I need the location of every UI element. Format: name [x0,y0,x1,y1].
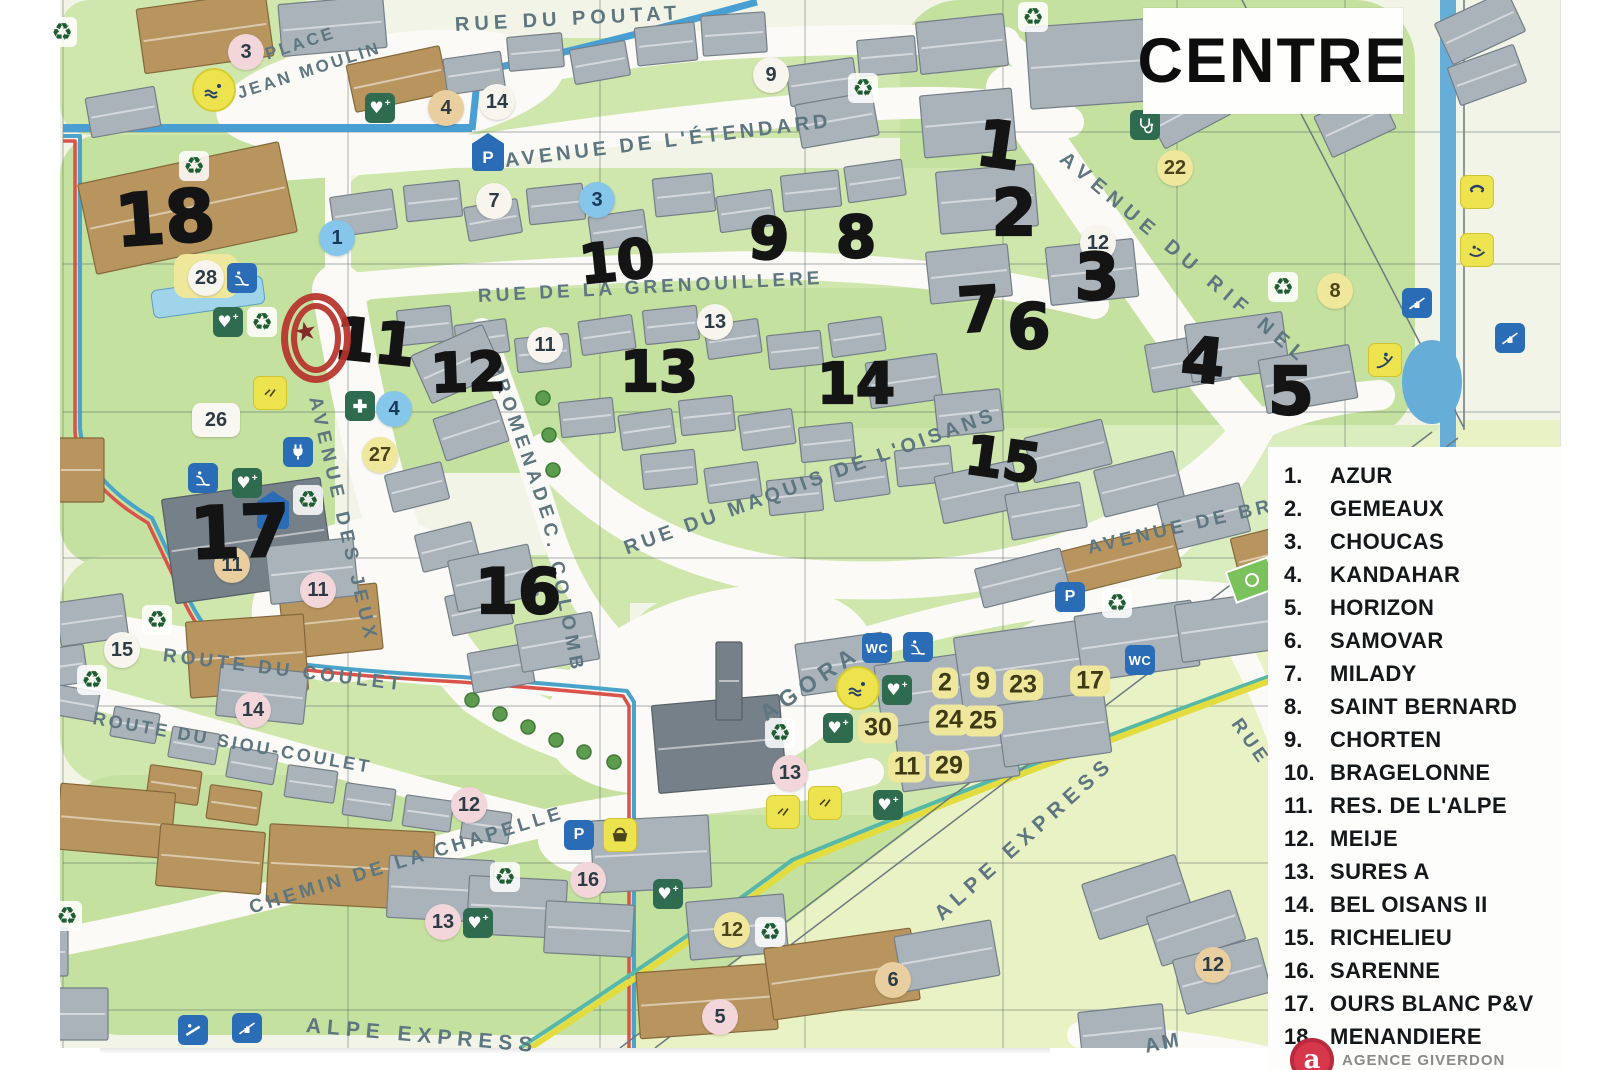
legend-item-name: AZUR [1330,463,1393,489]
skijump-icon [1368,343,1402,377]
legend-item-number: 3. [1284,529,1330,555]
legend-item-name: CHORTEN [1330,727,1442,753]
location-badge-1: 1 [319,220,355,256]
recycle-icon: ♻ [52,901,82,931]
heart-icon: ♥+ [882,675,912,705]
sledge-icon [1460,233,1494,267]
legend-item-number: 14. [1284,892,1330,918]
psq-icon: P [564,820,594,850]
legend-item-name: RICHELIEU [1330,925,1452,951]
legend-item-number: 15. [1284,925,1330,951]
legend-panel: 1.AZUR2.GEMEAUX3.CHOUCAS4.KANDAHAR5.HORI… [1268,447,1562,1070]
agence-logo-icon: a [1290,1038,1334,1070]
legend-item-name: GEMEAUX [1330,496,1444,522]
activity-icon [253,376,287,410]
legend-item-13: 13.SURES A [1284,855,1562,888]
map-title-box: CENTRE [1143,8,1403,114]
handwritten-number-8: 8 [836,208,876,266]
location-badge-25: 25 [963,706,1003,737]
legend-item-name: SAINT BERNARD [1330,694,1517,720]
pharmacy-icon [345,391,375,421]
location-badge-23: 23 [1003,670,1043,701]
legend-item-name: SURES A [1330,859,1430,885]
lift-icon [1402,288,1432,318]
location-badge-9: 9 [753,57,789,93]
psq-icon: P [1055,582,1085,612]
legend-item-7: 7.MILADY [1284,657,1562,690]
handwritten-number-7: 7 [955,278,1002,343]
scan-shadow [100,1048,1050,1054]
legend-item-number: 7. [1284,661,1330,687]
legend-item-15: 15.RICHELIEU [1284,921,1562,954]
recycle-icon: ♻ [1018,2,1048,32]
lift-icon [1495,323,1525,353]
legend-item-name: BEL OISANS II [1330,892,1488,918]
recycle-icon: ♻ [490,862,520,892]
location-badge-12: 12 [1195,947,1231,983]
activity-icon [808,786,842,820]
page-margin-left [0,0,60,1070]
location-badge-7: 7 [476,183,512,219]
legend-item-17: 17.OURS BLANC P&V [1284,987,1562,1020]
wc-icon: WC [862,633,892,663]
recycle-icon: ♻ [247,307,277,337]
location-badge-4: 4 [428,90,464,126]
location-badge-3: 3 [579,182,615,218]
location-badge-13: 13 [772,755,808,791]
handwritten-number-18: 18 [113,179,218,258]
phone-icon [1460,175,1494,209]
location-badge-11: 11 [300,572,336,608]
legend-item-number: 6. [1284,628,1330,654]
legend-item-name: RES. DE L'ALPE [1330,793,1507,819]
legend-item-number: 2. [1284,496,1330,522]
legend-item-5: 5.HORIZON [1284,591,1562,624]
legend-item-number: 17. [1284,991,1330,1017]
legend-item-name: SAMOVAR [1330,628,1444,654]
location-badge-16: 16 [570,862,606,898]
legend-item-number: 10. [1284,760,1330,786]
handwritten-number-15: 15 [962,428,1044,492]
location-badge-14: 14 [235,692,271,728]
handwritten-number-6: 6 [1007,296,1050,358]
legend-item-number: 4. [1284,562,1330,588]
plug-icon [283,437,313,467]
handwritten-number-10: 10 [577,231,657,293]
recycle-icon: ♻ [1102,588,1132,618]
location-badge-14: 14 [479,84,515,120]
agency-name: AGENCE GIVERDON [1342,1052,1505,1069]
legend-item-name: SARENNE [1330,958,1440,984]
legend-item-name: MILADY [1330,661,1417,687]
map-title: CENTRE [1138,25,1409,97]
legend-item-16: 16.SARENNE [1284,954,1562,987]
heart-icon: ♥+ [653,879,683,909]
location-badge-11: 11 [888,752,926,783]
pool-icon [192,68,236,112]
handwritten-number-12: 12 [430,345,507,402]
location-badge-17: 17 [1070,666,1110,697]
handwritten-number-13: 13 [620,345,698,401]
recycle-icon: ♻ [755,917,785,947]
board-icon [178,1015,208,1045]
location-badge-27: 27 [362,437,398,473]
legend-item-4: 4.KANDAHAR [1284,558,1562,591]
handwritten-number-1: 1 [972,111,1025,181]
legend-item-name: CHOUCAS [1330,529,1444,555]
activity-icon [766,795,800,829]
legend-item-14: 14.BEL OISANS II [1284,888,1562,921]
legend-item-12: 12.MEIJE [1284,822,1562,855]
legend-item-number: 12. [1284,826,1330,852]
heart-icon: ♥+ [213,307,243,337]
location-badge-29: 29 [929,751,969,782]
handwritten-number-4: 4 [1178,328,1227,394]
legend-item-1: 1.AZUR [1284,459,1562,492]
location-badge-3: 3 [228,34,264,70]
recycle-icon: ♻ [47,17,77,47]
page-margin-right [1560,0,1606,1070]
legend-item-2: 2.GEMEAUX [1284,492,1562,525]
heart-icon: ♥+ [365,93,395,123]
recycle-icon: ♻ [142,605,172,635]
stetho-icon [1130,110,1160,140]
legend-item-9: 9.CHORTEN [1284,723,1562,756]
location-badge-13: 13 [425,904,461,940]
legend-item-name: MEIJE [1330,826,1398,852]
handwritten-number-9: 9 [747,209,791,270]
location-badge-26: 26 [192,403,240,437]
waterslide-icon [188,463,218,493]
legend-item-6: 6.SAMOVAR [1284,624,1562,657]
heart-icon: ♥+ [823,713,853,743]
legend-item-8: 8.SAINT BERNARD [1284,690,1562,723]
location-badge-11: 11 [527,327,563,363]
lift-icon [232,1013,262,1043]
location-badge-15: 15 [104,632,140,668]
location-badge-12: 12 [714,912,750,948]
highlighted-location-ring [281,293,351,383]
heart-icon: ♥+ [873,790,903,820]
legend-item-number: 8. [1284,694,1330,720]
recycle-icon: ♻ [77,665,107,695]
legend-item-number: 5. [1284,595,1330,621]
location-badge-12: 12 [451,787,487,823]
location-badge-5: 5 [702,999,738,1035]
location-badge-9: 9 [970,667,996,698]
location-badge-30: 30 [858,713,898,744]
handwritten-number-16: 16 [475,561,561,623]
legend-item-3: 3.CHOUCAS [1284,525,1562,558]
legend-item-number: 13. [1284,859,1330,885]
legend-item-name: KANDAHAR [1330,562,1460,588]
agency-branding: a AGENCE GIVERDON [1290,1038,1505,1070]
location-badge-22: 22 [1157,150,1193,186]
handwritten-number-17: 17 [189,494,292,569]
wc-icon: WC [1125,645,1155,675]
location-badge-6: 6 [875,962,911,998]
legend-item-name: OURS BLANC P&V [1330,991,1534,1017]
legend-item-11: 11.RES. DE L'ALPE [1284,789,1562,822]
recycle-icon: ♻ [293,485,323,515]
legend-item-number: 11. [1284,793,1330,819]
basket-icon [603,818,637,852]
location-badge-28: 28 [188,260,224,296]
location-badge-2: 2 [932,668,958,699]
legend-item-name: BRAGELONNE [1330,760,1490,786]
resort-map-page: ♻♻♻♻♻♻♻♻♻♻♻♻♻♻♥+♥+♥+♥+♥+♥+♥+♥+WCWCPPPP R… [0,0,1606,1070]
legend-item-number: 1. [1284,463,1330,489]
recycle-icon: ♻ [848,73,878,103]
location-badge-8: 8 [1317,273,1353,309]
recycle-icon: ♻ [1268,272,1298,302]
handwritten-number-14: 14 [817,357,895,413]
handwritten-number-3: 3 [1075,246,1120,310]
waterslide-icon [903,632,933,662]
legend-item-number: 9. [1284,727,1330,753]
heart-icon: ♥+ [463,908,493,938]
waterslide-icon [227,263,257,293]
handwritten-number-5: 5 [1268,359,1314,425]
location-badge-13: 13 [697,304,733,340]
handwritten-number-2: 2 [992,182,1037,246]
legend-item-10: 10.BRAGELONNE [1284,756,1562,789]
legend-item-number: 16. [1284,958,1330,984]
legend-item-name: HORIZON [1330,595,1434,621]
location-badge-4: 4 [376,391,412,427]
